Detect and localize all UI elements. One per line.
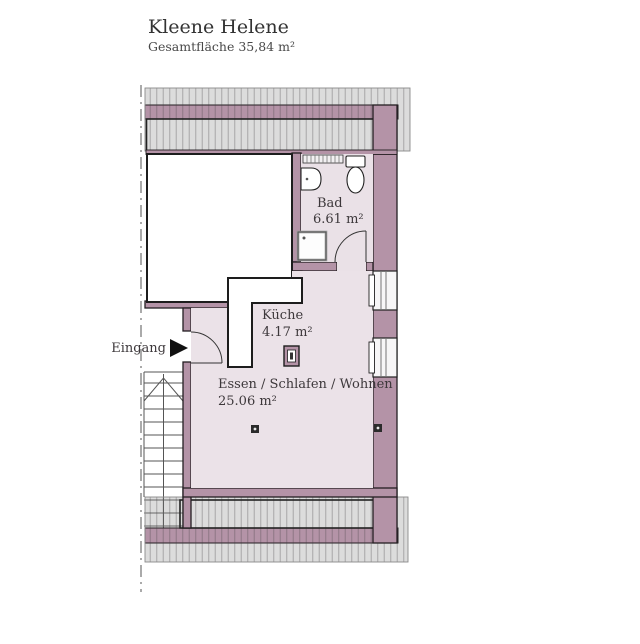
window-2 — [369, 338, 397, 377]
room-area-wohnen: 25.06 m² — [218, 394, 277, 409]
shower-drain — [303, 237, 306, 240]
page-subtitle: Gesamtfläche 35,84 m² — [148, 39, 295, 54]
right-exterior-wall — [373, 105, 397, 543]
socket-symbol-left — [251, 425, 259, 433]
radiator — [303, 155, 343, 163]
entrance-door-jamb — [183, 308, 191, 331]
toilet — [346, 156, 365, 193]
staircase — [144, 372, 183, 497]
bath-bottom-wall-left — [292, 262, 337, 271]
page-title: Kleene Helene — [148, 16, 289, 38]
room-area-bad: 6.61 m² — [313, 212, 364, 227]
sink — [301, 168, 321, 190]
entrance-arrow-icon — [170, 339, 188, 357]
bottom-interior-wall — [183, 488, 397, 497]
kitchen-flue — [284, 346, 299, 366]
socket-symbol-right — [374, 424, 382, 432]
left-interior-wall — [183, 362, 191, 528]
room-label-bad: Bad — [317, 196, 343, 211]
sink-drain — [306, 178, 309, 181]
entrance-label: Eingang — [111, 341, 166, 356]
room-label-wohnen: Essen / Schlafen / Wohnen — [218, 377, 393, 392]
shower — [298, 232, 326, 260]
roof-hatch-top — [145, 88, 410, 151]
bath-door-threshold — [337, 262, 366, 271]
room-label-kueche: Küche — [262, 308, 303, 323]
window-1 — [369, 271, 397, 310]
floorplan-svg: Kleene Helene Gesamtfläche 35,84 m² — [0, 0, 640, 644]
bath-bottom-wall-right — [366, 262, 373, 271]
floorplan-page: Kleene Helene Gesamtfläche 35,84 m² — [0, 0, 640, 644]
room-area-kueche: 4.17 m² — [262, 325, 313, 340]
